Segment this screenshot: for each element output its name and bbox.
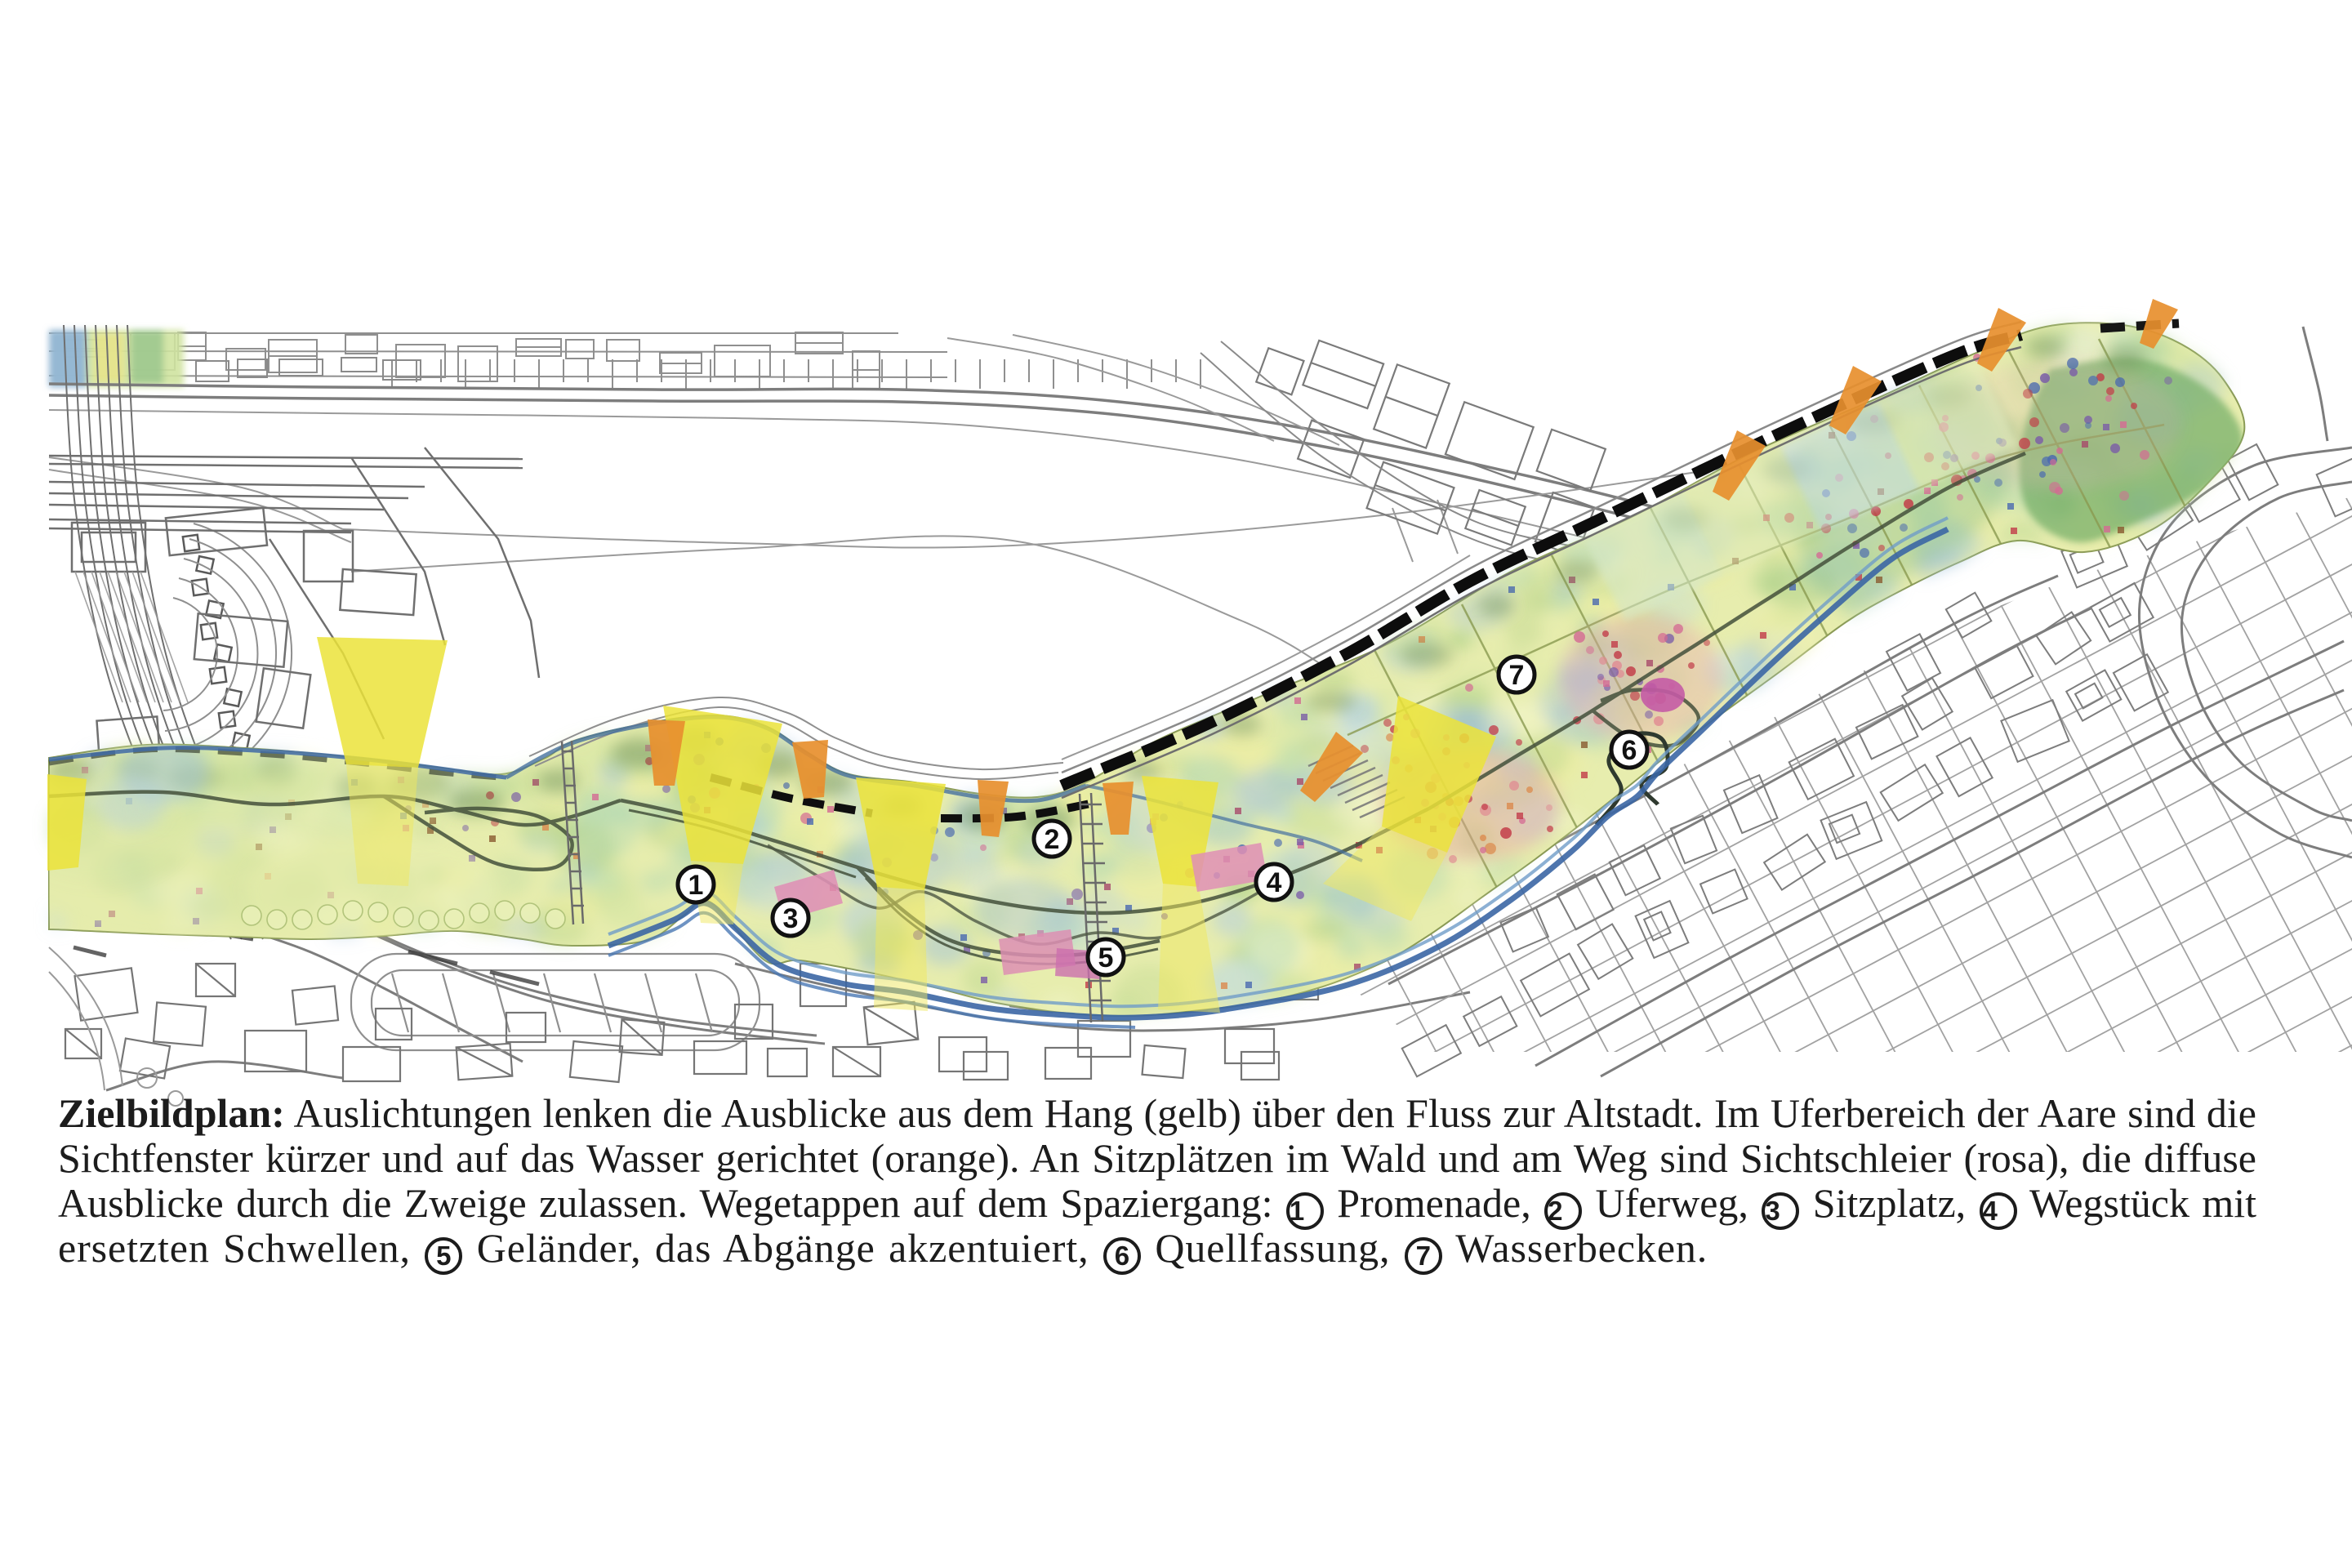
- svg-text:3: 3: [783, 903, 799, 934]
- svg-text:1: 1: [688, 870, 704, 901]
- svg-text:2: 2: [1045, 824, 1060, 855]
- svg-text:4: 4: [1267, 867, 1282, 898]
- svg-text:7: 7: [1509, 660, 1525, 691]
- svg-text:5: 5: [1098, 942, 1114, 973]
- svg-text:6: 6: [1622, 735, 1637, 766]
